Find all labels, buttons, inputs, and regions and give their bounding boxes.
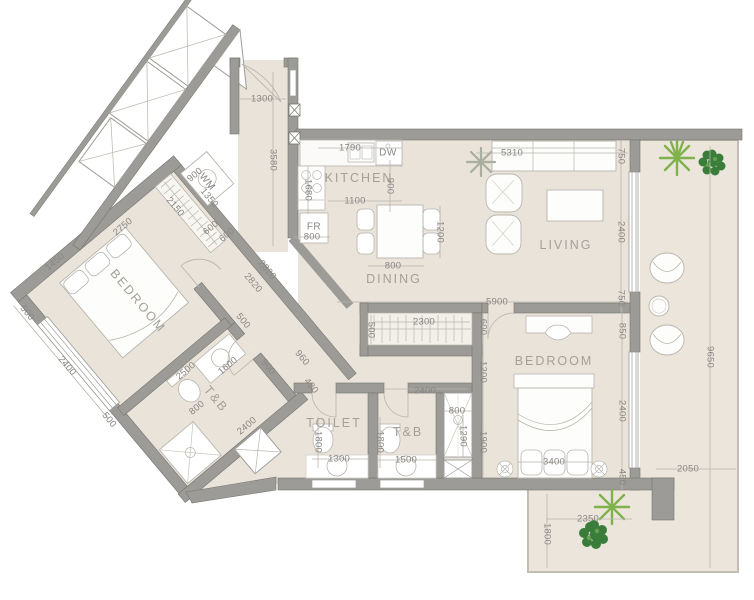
headboard (514, 374, 594, 388)
dining-chair (423, 209, 440, 230)
dining-chair (357, 209, 374, 230)
dishwasher-box (376, 141, 402, 165)
ceiling-spot (591, 461, 607, 477)
terrace-floor (528, 490, 738, 573)
bathroom-sink (396, 456, 416, 476)
dining-chair (357, 233, 374, 254)
floor-plan: KITCHENDININGLIVINGBEDROOMBEDROOMTOILETT… (0, 0, 754, 600)
armchair (486, 174, 522, 212)
fridge-box (300, 213, 328, 243)
toilet-wc (380, 427, 400, 453)
pillow (544, 450, 565, 475)
toilet-wc (313, 427, 333, 453)
armchair (486, 215, 521, 254)
balcony-chair (650, 325, 684, 355)
bed (518, 388, 592, 478)
sofa (492, 141, 616, 171)
pillow (567, 450, 588, 475)
ceiling-spot (497, 461, 513, 477)
sink (348, 143, 374, 162)
balcony-chair (650, 253, 684, 283)
dining-table (377, 205, 423, 258)
plan-graphics (0, 0, 754, 600)
coffee-table (547, 190, 603, 221)
plant-icon (660, 141, 694, 175)
hall-closet (368, 313, 472, 345)
shower (444, 393, 472, 457)
dining-chair (423, 233, 440, 254)
stove (298, 166, 325, 210)
plant-icon (467, 148, 495, 176)
duct-shaft (444, 460, 472, 478)
pillow (521, 450, 542, 475)
